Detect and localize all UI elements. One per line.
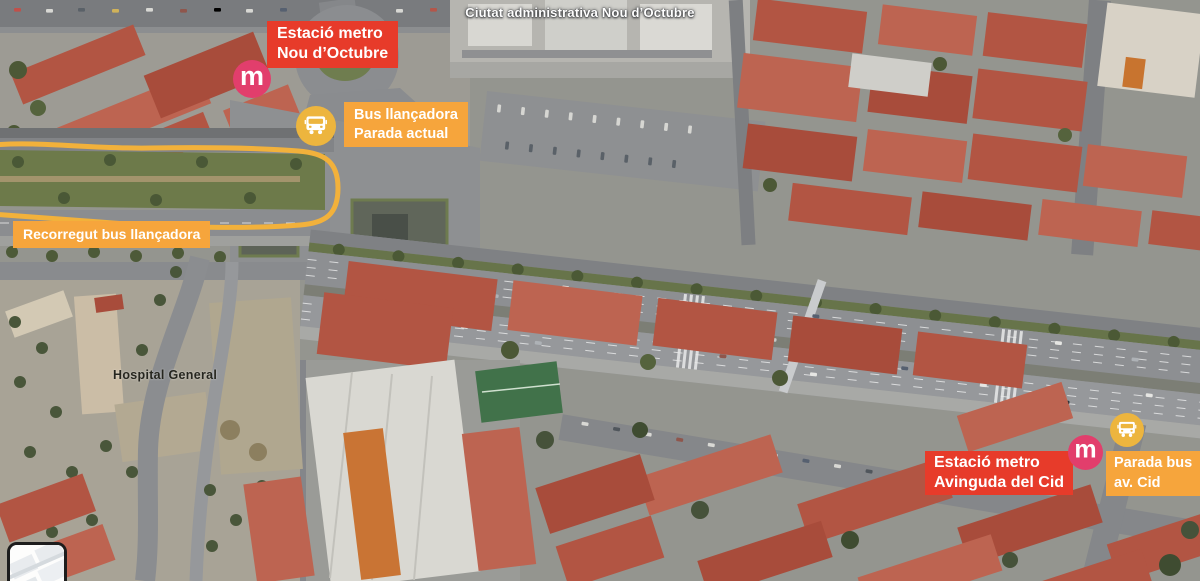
label-line: Nou d’Octubre bbox=[277, 44, 388, 64]
ciutat-administrativa-buildings bbox=[450, 0, 750, 78]
label-line: Estació metro bbox=[934, 453, 1064, 473]
metro-glyph: m bbox=[240, 61, 264, 92]
label-line: Estació metro bbox=[277, 24, 388, 44]
metro-m-icon: m bbox=[233, 60, 271, 98]
metro-glyph: m bbox=[1074, 435, 1096, 464]
bus-stop-marker-current bbox=[296, 106, 336, 146]
label-line: Bus llançadora bbox=[354, 106, 458, 125]
label-line: Parada bus bbox=[1114, 454, 1192, 474]
label-recorregut-bus-llancadora: Recorregut bus llançadora bbox=[13, 221, 210, 248]
hospital-campus bbox=[0, 258, 315, 581]
label-bus-llancadora-parada-actual: Bus llançadora Parada actual bbox=[344, 102, 468, 147]
map-inset-toggle[interactable] bbox=[7, 542, 67, 581]
inset-street-map bbox=[10, 545, 65, 581]
label-parada-bus-av-cid: Parada bus av. Cid bbox=[1106, 451, 1200, 496]
map-viewport[interactable]: Ciutat administrativa Nou d’Octubre Hosp… bbox=[0, 0, 1200, 581]
bus-stop-marker-av-cid bbox=[1110, 413, 1144, 447]
label-line: Parada actual bbox=[354, 125, 458, 144]
bus-icon bbox=[1116, 419, 1138, 441]
label-line: av. Cid bbox=[1114, 474, 1192, 494]
metro-m-icon: m bbox=[1068, 435, 1103, 470]
label-estacio-metro-nou-octubre: Estació metro Nou d’Octubre bbox=[267, 21, 398, 68]
label-line: Avinguda del Cid bbox=[934, 473, 1064, 493]
label-estacio-metro-avinguda-cid: Estació metro Avinguda del Cid bbox=[925, 451, 1073, 495]
bus-icon bbox=[303, 113, 329, 139]
